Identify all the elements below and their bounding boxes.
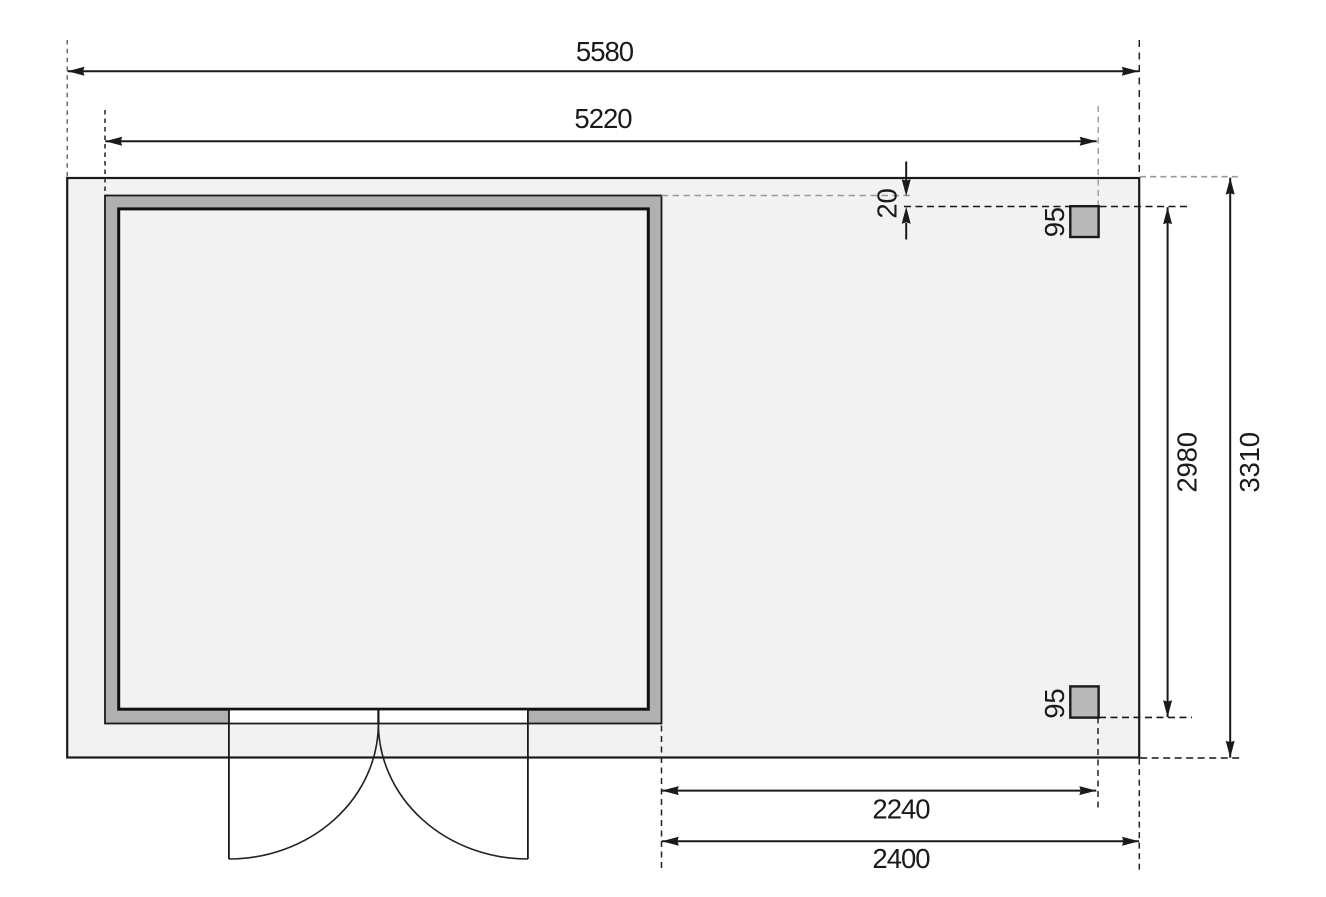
svg-text:2980: 2980 [1172,432,1203,492]
svg-text:5220: 5220 [574,103,632,134]
svg-text:3310: 3310 [1234,432,1265,492]
svg-text:2400: 2400 [872,843,930,874]
svg-text:95: 95 [1039,688,1070,718]
svg-text:95: 95 [1039,207,1070,237]
svg-text:20: 20 [871,188,902,218]
svg-text:5580: 5580 [576,36,634,67]
svg-text:2240: 2240 [872,793,930,824]
